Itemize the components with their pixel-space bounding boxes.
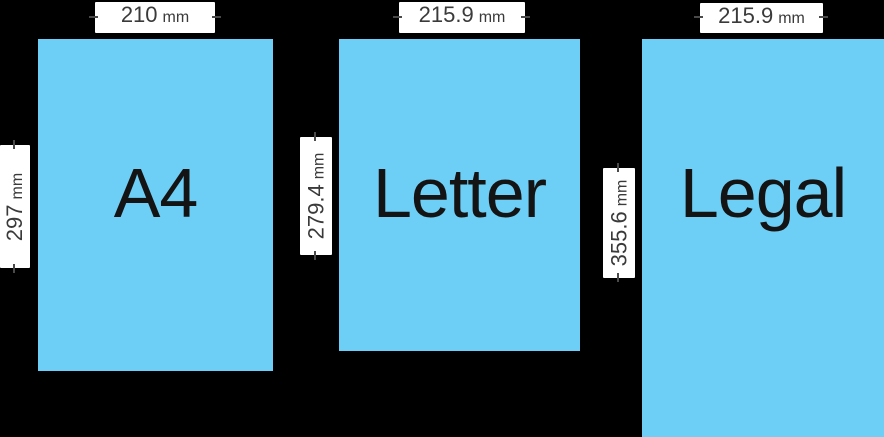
letter-width-label: 215.9 mm	[399, 2, 525, 33]
paper-letter: Letter	[339, 39, 580, 351]
legal-height-value: 355.6	[606, 211, 632, 266]
dimension-tick	[393, 16, 402, 18]
a4-width-label: 210 mm	[95, 2, 215, 33]
letter-height-label: 279.4 mm	[300, 137, 332, 255]
legal-width-label: 215.9 mm	[700, 3, 823, 33]
dimension-tick	[13, 140, 15, 149]
a4-height-label: 297 mm	[0, 145, 30, 268]
legal-height-label: 355.6 mm	[603, 168, 635, 278]
dimension-tick	[819, 16, 828, 18]
paper-letter-name: Letter	[339, 153, 580, 233]
dimension-tick	[314, 251, 316, 260]
a4-height-value: 297	[2, 204, 28, 241]
dimension-tick	[521, 16, 530, 18]
paper-size-comparison-diagram: A4 210 mm 297 mm Letter 215.9 mm 279.4 m…	[0, 0, 884, 437]
dimension-tick	[694, 16, 703, 18]
letter-width-unit: mm	[479, 9, 506, 27]
letter-height-value: 279.4	[303, 184, 329, 239]
paper-legal: Legal	[642, 39, 884, 437]
a4-width-value: 210	[121, 2, 158, 28]
letter-height-unit: mm	[310, 153, 328, 180]
dimension-tick	[13, 264, 15, 273]
legal-width-value: 215.9	[718, 3, 773, 29]
legal-height-unit: mm	[613, 180, 631, 207]
dimension-tick	[617, 163, 619, 172]
dimension-tick	[89, 16, 98, 18]
letter-width-value: 215.9	[419, 2, 474, 28]
a4-width-unit: mm	[163, 9, 190, 27]
dimension-tick	[617, 273, 619, 282]
paper-legal-name: Legal	[642, 153, 884, 233]
legal-width-unit: mm	[778, 10, 805, 28]
paper-a4-name: A4	[38, 153, 273, 233]
dimension-tick	[212, 16, 221, 18]
paper-a4: A4	[38, 39, 273, 371]
dimension-tick	[314, 132, 316, 141]
a4-height-unit: mm	[9, 172, 27, 199]
